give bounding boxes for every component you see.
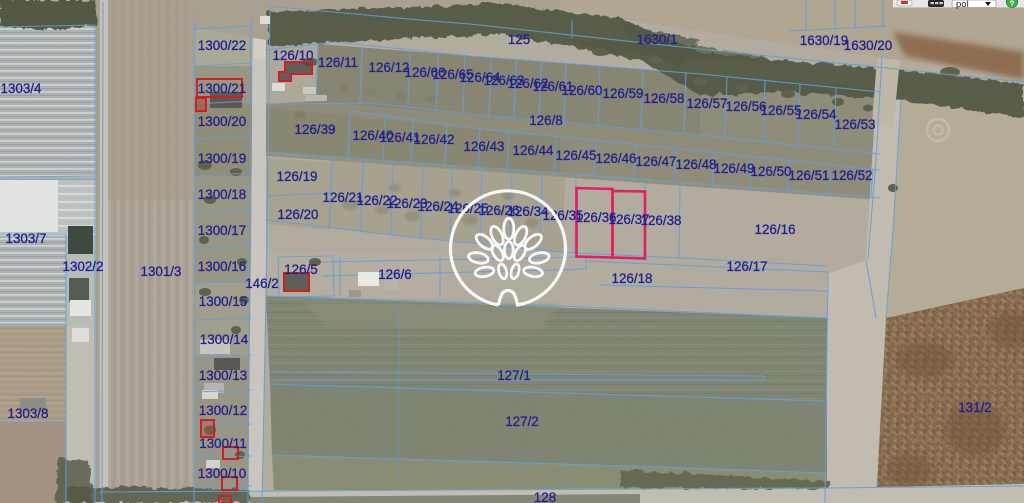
svg-text:146/2: 146/2 [245,276,279,291]
svg-text:126/38: 126/38 [641,213,682,228]
svg-text:126/48: 126/48 [676,157,717,172]
svg-text:126/49: 126/49 [714,161,755,176]
svg-text:1300/17: 1300/17 [198,223,246,238]
svg-text:126/53: 126/53 [835,117,876,132]
svg-text:1303/4: 1303/4 [1,81,43,96]
svg-text:1300/19: 1300/19 [198,151,246,166]
svg-text:126/44: 126/44 [513,143,555,158]
svg-text:126/11: 126/11 [318,55,358,70]
svg-text:125: 125 [508,32,530,47]
svg-text:126/20: 126/20 [278,207,319,222]
svg-text:1300/14: 1300/14 [200,332,249,347]
svg-text:1303/7: 1303/7 [6,231,47,246]
svg-text:126/19: 126/19 [277,169,318,184]
svg-text:1630/20: 1630/20 [844,38,892,53]
svg-text:126/59: 126/59 [603,86,644,101]
svg-text:126/57: 126/57 [687,96,728,111]
svg-text:1300/11: 1300/11 [199,436,246,451]
svg-text:126/45: 126/45 [556,148,597,163]
svg-text:126/18: 126/18 [612,271,653,286]
svg-text:1300/16: 1300/16 [198,259,246,274]
svg-text:126/46: 126/46 [596,151,637,166]
svg-text:1300/13: 1300/13 [199,368,247,383]
svg-text:127/1: 127/1 [497,368,531,383]
svg-text:126/60: 126/60 [562,83,603,98]
svg-text:1300/20: 1300/20 [198,114,246,129]
svg-text:126/12: 126/12 [369,60,410,75]
svg-text:1300/22: 1300/22 [198,38,246,53]
svg-text:126/43: 126/43 [464,139,505,154]
svg-text:126/17: 126/17 [727,259,768,274]
svg-text:1300/10: 1300/10 [198,466,246,481]
svg-text:1303/8: 1303/8 [8,406,49,421]
svg-text:126/42: 126/42 [414,132,455,147]
svg-text:126/58: 126/58 [644,91,685,106]
svg-text:?: ? [1010,0,1015,9]
svg-text:131/2: 131/2 [958,400,992,415]
svg-text:126/54: 126/54 [796,107,838,122]
svg-text:126/16: 126/16 [755,222,796,237]
svg-text:126/47: 126/47 [636,154,677,169]
svg-text:126/50: 126/50 [751,164,792,179]
svg-text:1300/15: 1300/15 [199,294,247,309]
svg-text:1301/3: 1301/3 [141,264,182,279]
svg-text:126/51: 126/51 [789,168,830,183]
svg-text:pol: pol [956,0,969,10]
svg-text:126/52: 126/52 [832,168,873,183]
svg-text:1630/1: 1630/1 [637,32,678,47]
svg-text:1300/12: 1300/12 [199,403,247,418]
svg-text:128: 128 [534,490,556,503]
svg-text:1302/2: 1302/2 [63,259,104,274]
svg-text:126/39: 126/39 [295,122,336,137]
svg-text:126/6: 126/6 [378,267,412,282]
svg-text:127/2: 127/2 [505,414,539,429]
svg-text:1300/18: 1300/18 [198,187,246,202]
svg-text:1630/19: 1630/19 [800,33,848,48]
svg-text:126/5: 126/5 [284,262,318,277]
svg-text:126/8: 126/8 [529,113,563,128]
svg-text:1300/21: 1300/21 [198,81,246,96]
svg-text:126/10: 126/10 [273,48,314,63]
